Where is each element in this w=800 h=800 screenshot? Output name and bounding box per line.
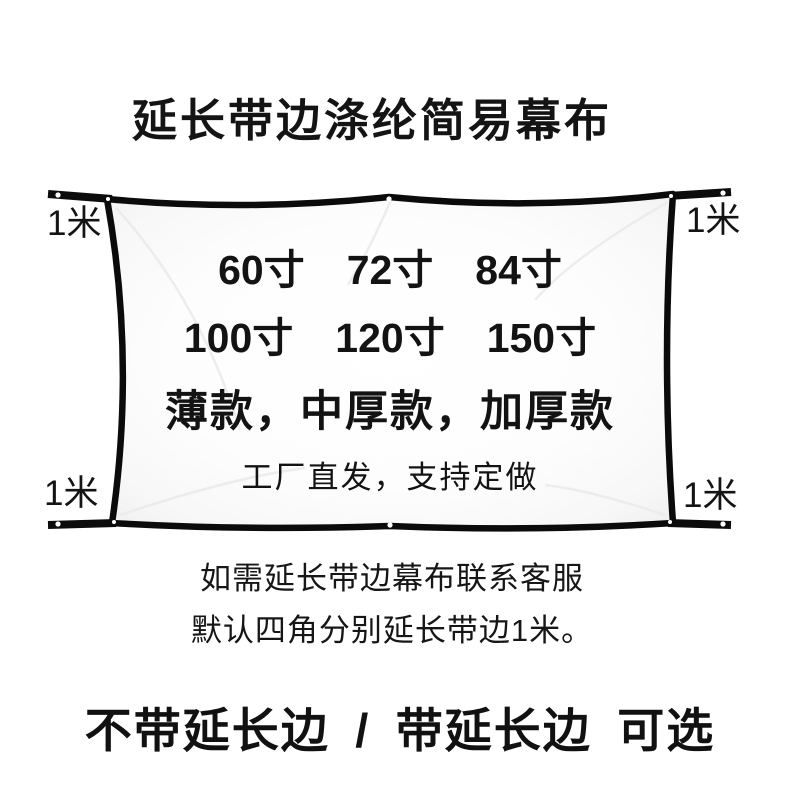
factory-note-line: 工厂直发，支持定做 — [110, 462, 670, 493]
grommet-icon — [387, 522, 392, 527]
grommet-icon — [668, 520, 672, 524]
size-item: 60寸 — [218, 250, 305, 291]
size-item: 150寸 — [487, 318, 596, 359]
product-image-canvas: 延长带边涤纶简易幕布 — [0, 0, 800, 800]
corner-label-bottom-left: 1米 — [44, 476, 98, 511]
size-item: 72寸 — [347, 250, 434, 291]
grommet-icon — [112, 520, 116, 524]
corner-label-top-left: 1米 — [47, 206, 101, 241]
size-item: 84寸 — [475, 250, 562, 291]
grommet-icon — [55, 521, 60, 526]
grommet-icon — [386, 196, 391, 201]
grommet-icon — [720, 521, 725, 526]
note-line-2: 默认四角分别延长带边1米。 — [0, 615, 792, 646]
corner-label-top-right: 1米 — [686, 203, 740, 238]
grommet-icon — [106, 197, 110, 201]
note-line-1: 如需延长带边幕布联系客服 — [0, 563, 792, 594]
grommet-icon — [720, 190, 725, 195]
footer-options-line: 不带延长边 / 带延长边 可选 — [0, 707, 800, 754]
size-row-1: 60寸 72寸 84寸 — [110, 250, 670, 291]
grommet-icon — [55, 192, 60, 197]
size-item: 120寸 — [335, 318, 444, 359]
thickness-options-line: 薄款，中厚款，加厚款 — [110, 391, 670, 434]
size-row-2: 100寸 120寸 150寸 — [110, 318, 670, 359]
size-item: 100寸 — [184, 318, 293, 359]
corner-label-bottom-right: 1米 — [683, 478, 737, 513]
grommet-icon — [669, 194, 673, 198]
